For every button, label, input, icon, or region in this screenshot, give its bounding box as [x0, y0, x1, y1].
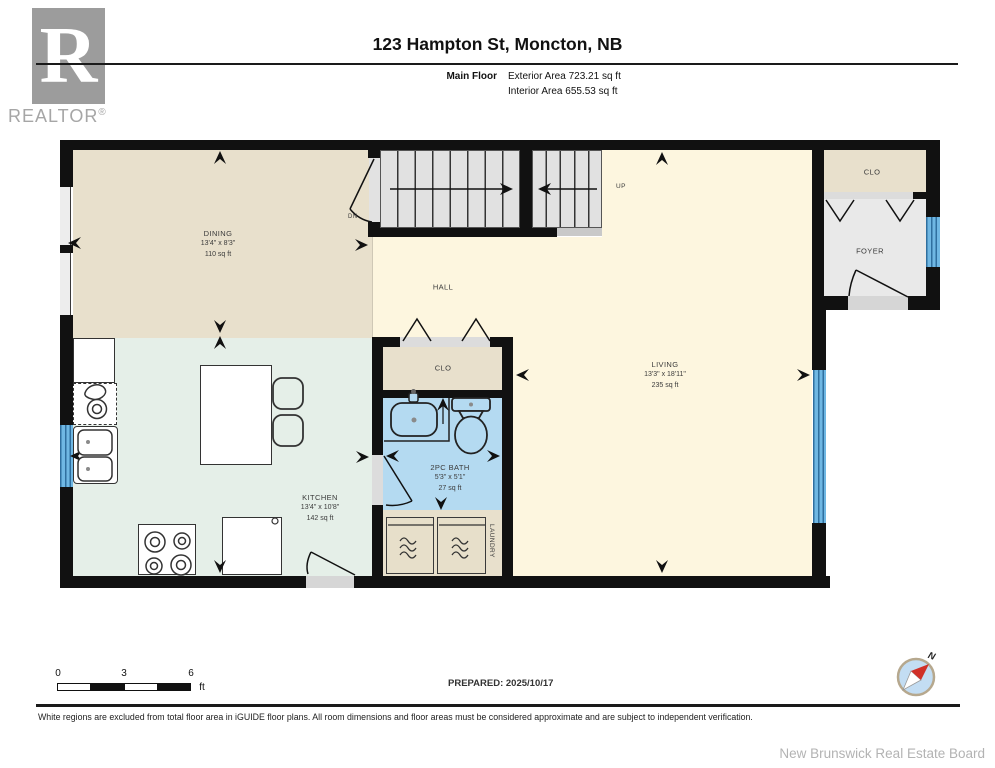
dining-name: DINING	[201, 228, 236, 239]
entry-closet-label: CLO	[864, 166, 881, 177]
scale-seg-4	[158, 683, 191, 691]
kitchen-dims: 13'4" x 10'8"	[301, 503, 339, 514]
island-chairs	[273, 378, 303, 446]
fridge-handle	[272, 518, 278, 524]
door-swings	[307, 159, 908, 575]
board-credit: New Brunswick Real Estate Board	[779, 746, 985, 761]
scale-seg-3	[124, 683, 158, 691]
stove-burners	[145, 532, 191, 575]
living-room-label: LIVING 13'3" x 18'11" 235 sq ft	[644, 359, 686, 391]
footer-rule	[36, 704, 960, 707]
plan-overlay	[0, 0, 995, 768]
hall-closet-label: CLO	[435, 362, 452, 373]
living-name: LIVING	[644, 359, 686, 370]
bath-name: 2PC BATH	[430, 462, 469, 473]
compass-icon	[898, 659, 934, 695]
bath-dims: 5'3" x 5'1"	[430, 473, 469, 484]
scale-seg-1	[57, 683, 91, 691]
scale-tick-0: 0	[55, 668, 61, 679]
stairs-up-label: UP	[616, 183, 626, 190]
bath-sink-icon	[384, 389, 449, 441]
laundry-label: LAUNDRY	[488, 524, 495, 570]
scale-unit: ft	[199, 682, 205, 693]
prep-sink-icon	[85, 385, 107, 419]
kitchen-area: 142 sq ft	[301, 514, 339, 525]
living-area: 235 sq ft	[644, 381, 686, 392]
scale-seg-2	[91, 683, 124, 691]
laundry-waves	[388, 525, 485, 558]
prepared-date: PREPARED: 2025/10/17	[448, 678, 553, 689]
floorplan-page: R REALTOR® 123 Hampton St, Moncton, NB M…	[0, 0, 995, 768]
living-dims: 13'3" x 18'11"	[644, 370, 686, 381]
sink-basins	[78, 430, 112, 481]
bath-room-label: 2PC BATH 5'3" x 5'1" 27 sq ft	[430, 462, 469, 494]
dining-dims: 13'4" x 8'3"	[201, 239, 236, 250]
stairs-down-label: DN	[348, 214, 357, 220]
scale-tick-6: 6	[188, 668, 194, 679]
bath-area: 27 sq ft	[430, 484, 469, 495]
bifold-doors	[403, 200, 914, 341]
dining-area: 110 sq ft	[201, 250, 236, 261]
hall-label: HALL	[433, 281, 453, 292]
disclaimer-text: White regions are excluded from total fl…	[38, 712, 958, 722]
kitchen-name: KITCHEN	[301, 492, 339, 503]
scale-tick-3: 3	[121, 668, 127, 679]
foyer-label: FOYER	[856, 245, 884, 256]
dining-room-label: DINING 13'4" x 8'3" 110 sq ft	[201, 228, 236, 260]
kitchen-room-label: KITCHEN 13'4" x 10'8" 142 sq ft	[301, 492, 339, 524]
toilet-icon	[452, 398, 490, 454]
